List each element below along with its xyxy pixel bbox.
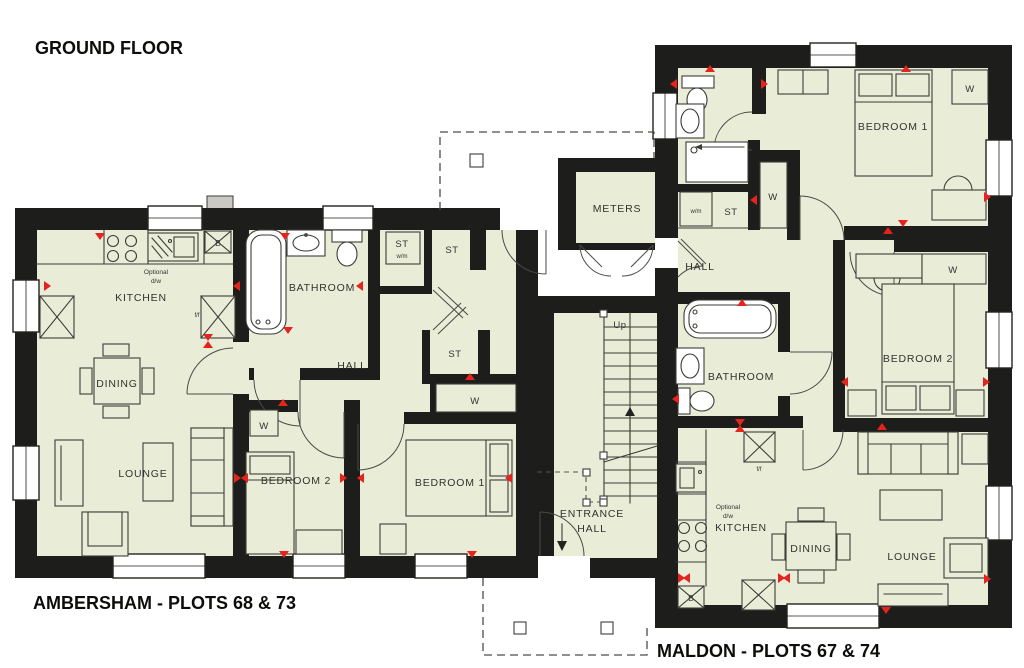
floor-plan-drawing: GROUND FLOOR AMBERSHAM - PLOTS 68 & 73 M… (0, 0, 1024, 668)
window (986, 140, 1012, 196)
fridge-freezer-unit (201, 296, 235, 338)
maldon-dining-label: DINING (790, 543, 832, 555)
fridge-freezer-unit (744, 432, 775, 462)
double-bed-icon (882, 284, 954, 414)
window (986, 486, 1012, 540)
window (293, 554, 345, 578)
washing-machine-label: w/m (396, 254, 408, 260)
window (415, 554, 467, 578)
basin-icon (287, 230, 325, 256)
dishwasher-label: d/w (151, 278, 161, 285)
floor-plan-sheet: GROUND FLOOR AMBERSHAM - PLOTS 68 & 73 M… (0, 0, 1024, 668)
ambersham-kitchen-label: KITCHEN (115, 292, 167, 304)
ambersham-bedroom2-label: BEDROOM 2 (261, 475, 331, 487)
ambersham-caption: AMBERSHAM - PLOTS 68 & 73 (33, 593, 296, 613)
maldon-caption: MALDON - PLOTS 67 & 74 (657, 641, 880, 661)
tv-unit (878, 584, 948, 606)
wardrobe-label: W (259, 421, 269, 432)
washing-machine-label: w/m (690, 209, 702, 215)
sink-icon (676, 464, 706, 492)
optional-label: Optional (144, 269, 169, 276)
maldon-bedroom2-label: BEDROOM 2 (883, 353, 953, 365)
window (653, 93, 677, 139)
fridge-freezer-label: f/f (194, 313, 199, 319)
maldon-hall-label: HALL (685, 261, 714, 273)
armchair-icon (82, 512, 128, 556)
bedside-unit (956, 390, 984, 416)
window (13, 280, 39, 332)
basin-icon (676, 348, 704, 384)
sink-icon (148, 233, 198, 261)
store-label: ST (395, 239, 408, 250)
ambersham-bathroom-label: BATHROOM (289, 282, 355, 294)
fridge-freezer-label: f/f (756, 467, 761, 473)
maldon-bathroom-label: BATHROOM (708, 371, 774, 383)
window (323, 206, 373, 230)
entrance-hall-label-line2: HALL (577, 523, 606, 535)
entrance-hall-label-line1: ENTRANCE (560, 508, 624, 520)
window (13, 446, 39, 500)
tv-unit (55, 440, 83, 506)
desk-icon (856, 254, 922, 278)
chest-icon (380, 524, 406, 554)
sofa-icon (858, 432, 958, 474)
flue-stub (207, 196, 233, 209)
maldon-bedroom1-label: BEDROOM 1 (858, 121, 928, 133)
single-bed-icon (246, 452, 294, 554)
ambersham-dining-label: DINING (96, 378, 138, 390)
window (787, 604, 879, 628)
bedside-unit (848, 390, 876, 416)
coffee-table (880, 490, 942, 520)
sofa-icon (191, 428, 233, 526)
page-title: GROUND FLOOR (35, 38, 183, 58)
boiler-label: B (688, 593, 694, 603)
window (148, 206, 202, 230)
optional-label: Optional (716, 504, 741, 511)
base-unit (742, 580, 775, 610)
window (113, 554, 205, 578)
store-label: ST (445, 245, 458, 256)
side-table (962, 434, 988, 464)
base-unit (40, 296, 74, 338)
canopy-post (601, 622, 613, 634)
wardrobe-label: W (948, 265, 958, 276)
basin-icon (676, 104, 704, 138)
window (810, 43, 856, 67)
store-label: ST (724, 207, 737, 218)
stairs-up-label: Up (613, 320, 626, 331)
wardrobe-label: W (470, 396, 480, 407)
ambersham-hall-label: HALL (337, 360, 366, 372)
ambersham-bedroom1-label: BEDROOM 1 (415, 477, 485, 489)
chest-icon (296, 530, 342, 554)
wardrobe-label: W (965, 84, 975, 95)
shower-icon (686, 142, 748, 182)
canopy-post (514, 622, 526, 634)
armchair-icon (944, 538, 988, 578)
maldon-lounge-label: LOUNGE (887, 551, 936, 563)
window (986, 312, 1012, 368)
canopy-post (470, 154, 483, 167)
maldon-kitchen-label: KITCHEN (715, 522, 767, 534)
store-label: ST (448, 349, 461, 360)
ambersham-lounge-label: LOUNGE (118, 468, 167, 480)
dishwasher-label: d/w (723, 513, 733, 520)
meters-label: METERS (593, 203, 642, 215)
boiler-label: B (215, 238, 221, 248)
desk-icon (932, 190, 986, 220)
wardrobe-label: W (768, 192, 778, 203)
